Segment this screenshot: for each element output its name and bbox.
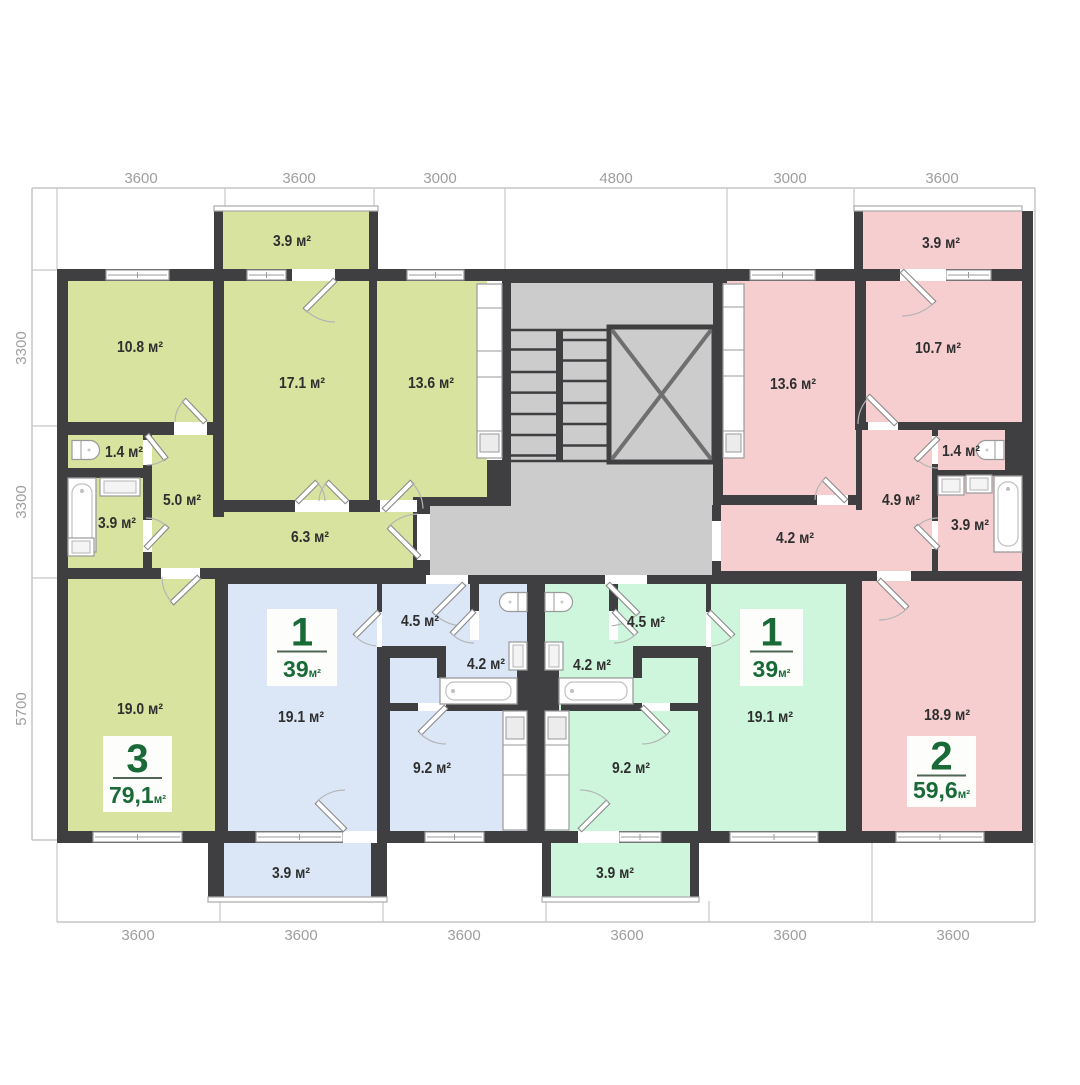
svg-text:5.0 м²: 5.0 м² [163,492,201,509]
svg-text:3.9 м²: 3.9 м² [272,865,310,882]
svg-text:3600: 3600 [284,927,317,944]
svg-text:10.7 м²: 10.7 м² [915,340,961,357]
svg-text:3600: 3600 [773,927,806,944]
svg-text:10.8 м²: 10.8 м² [117,339,163,356]
svg-text:13.6 м²: 13.6 м² [770,376,816,393]
svg-text:3600: 3600 [936,927,969,944]
svg-text:4.9 м²: 4.9 м² [882,492,920,509]
svg-text:18.9 м²: 18.9 м² [924,707,970,724]
svg-text:13.6 м²: 13.6 м² [408,375,454,392]
svg-text:4.5 м²: 4.5 м² [627,614,665,631]
svg-text:3.9 м²: 3.9 м² [273,233,311,250]
svg-text:3300: 3300 [13,485,30,518]
svg-text:4800: 4800 [599,170,632,187]
svg-text:3.9 м²: 3.9 м² [596,865,634,882]
svg-text:19.1 м²: 19.1 м² [747,709,793,726]
svg-text:6.3 м²: 6.3 м² [291,529,329,546]
svg-text:3600: 3600 [282,170,315,187]
svg-text:4.2 м²: 4.2 м² [573,657,611,674]
svg-text:3600: 3600 [124,170,157,187]
svg-text:3: 3 [126,737,148,781]
svg-text:3600: 3600 [447,927,480,944]
svg-text:19.1 м²: 19.1 м² [278,709,324,726]
svg-text:3300: 3300 [13,331,30,364]
svg-text:1: 1 [291,611,313,655]
svg-text:4.2 м²: 4.2 м² [467,656,505,673]
svg-text:3600: 3600 [610,927,643,944]
svg-text:3.9 м²: 3.9 м² [951,517,989,534]
svg-text:19.0 м²: 19.0 м² [117,701,163,718]
svg-text:1.4 м²: 1.4 м² [105,444,143,461]
svg-text:3.9 м²: 3.9 м² [922,235,960,252]
svg-text:1: 1 [760,611,782,655]
svg-text:1.4 м²: 1.4 м² [942,443,980,460]
svg-text:9.2 м²: 9.2 м² [612,760,650,777]
svg-text:2: 2 [930,735,952,779]
svg-text:4.5 м²: 4.5 м² [401,613,439,630]
svg-text:3000: 3000 [773,170,806,187]
svg-text:3000: 3000 [423,170,456,187]
svg-text:17.1 м²: 17.1 м² [279,375,325,392]
svg-text:3600: 3600 [925,170,958,187]
svg-text:9.2 м²: 9.2 м² [413,760,451,777]
svg-text:3600: 3600 [121,927,154,944]
svg-text:4.2 м²: 4.2 м² [776,530,814,547]
svg-text:5700: 5700 [13,692,30,725]
svg-text:3.9 м²: 3.9 м² [98,515,136,532]
